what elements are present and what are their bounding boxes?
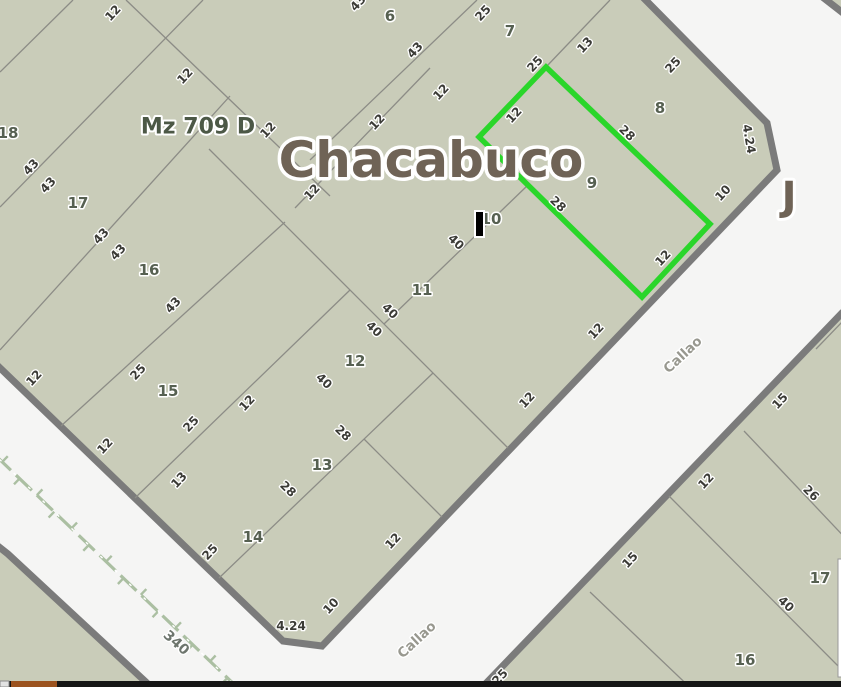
railway-tick	[175, 622, 181, 628]
parcel-label-12[interactable]: 12	[345, 352, 366, 370]
parcel-label-13[interactable]: 13	[312, 456, 333, 474]
parcel-label-16[interactable]: 16	[139, 261, 160, 279]
railway-tick	[14, 479, 20, 485]
street-name-callao: Callao	[660, 333, 705, 377]
railway-tick	[83, 545, 89, 551]
parcel-label-17[interactable]: 17	[810, 569, 831, 587]
railway-tick	[141, 589, 147, 595]
parcel-label-18[interactable]: 18	[0, 124, 18, 142]
parcel-label-9[interactable]: 9	[587, 174, 597, 192]
text-cursor	[475, 211, 484, 237]
block-block-northeast-sliver[interactable]	[816, 0, 841, 20]
dimension-label: 4.24	[276, 619, 306, 633]
parcel-label-15[interactable]: 15	[158, 382, 179, 400]
block-title: Mz 709 D	[141, 115, 255, 140]
parcel-label-7[interactable]: 7	[505, 22, 515, 40]
bottom-bar-chip	[0, 681, 9, 687]
junction-label: J	[779, 174, 797, 220]
railway-tick	[37, 489, 43, 495]
cadastral-map-canvas[interactable]: 121243254325121325121212284.241228104012…	[0, 0, 841, 687]
railway-tick	[118, 578, 124, 584]
block-block-southwest[interactable]	[0, 516, 162, 687]
parcel-label-6[interactable]: 6	[385, 7, 395, 25]
railway-label: 340	[160, 627, 193, 659]
railway-tick	[153, 611, 159, 617]
parcel-label-14[interactable]: 14	[243, 528, 264, 546]
railway-tick	[2, 456, 8, 462]
railway-tick	[106, 556, 112, 562]
parcel-label-16[interactable]: 16	[735, 651, 756, 669]
railway-tick	[71, 523, 77, 529]
bottom-bar-orange-segment	[11, 681, 57, 687]
parcel-label-8[interactable]: 8	[655, 99, 665, 117]
parcel-label-11[interactable]: 11	[412, 281, 433, 299]
bottom-bar	[0, 681, 841, 687]
map-viewport[interactable]: 121243254325121325121212284.241228104012…	[0, 0, 841, 687]
railway-tick	[49, 512, 55, 518]
street-name-chacabuco: Chacabuco	[279, 131, 584, 189]
street-name-callao: Callao	[394, 618, 439, 662]
railway-tick	[210, 656, 216, 662]
parcel-label-17[interactable]: 17	[68, 194, 89, 212]
